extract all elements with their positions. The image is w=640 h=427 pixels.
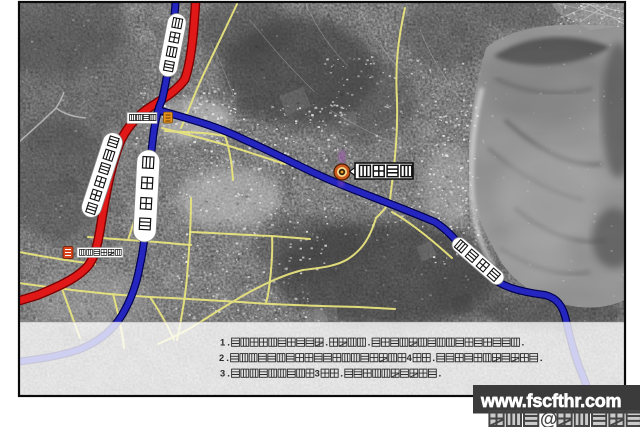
- svg-text:3: 3: [220, 369, 225, 379]
- svg-text:2: 2: [219, 353, 224, 363]
- svg-text:1: 1: [220, 338, 225, 348]
- svg-text:4: 4: [407, 353, 413, 363]
- svg-text:3: 3: [315, 369, 320, 379]
- svg-text:@: @: [540, 409, 558, 427]
- svg-text:www.fscfthr.com: www.fscfthr.com: [480, 391, 621, 411]
